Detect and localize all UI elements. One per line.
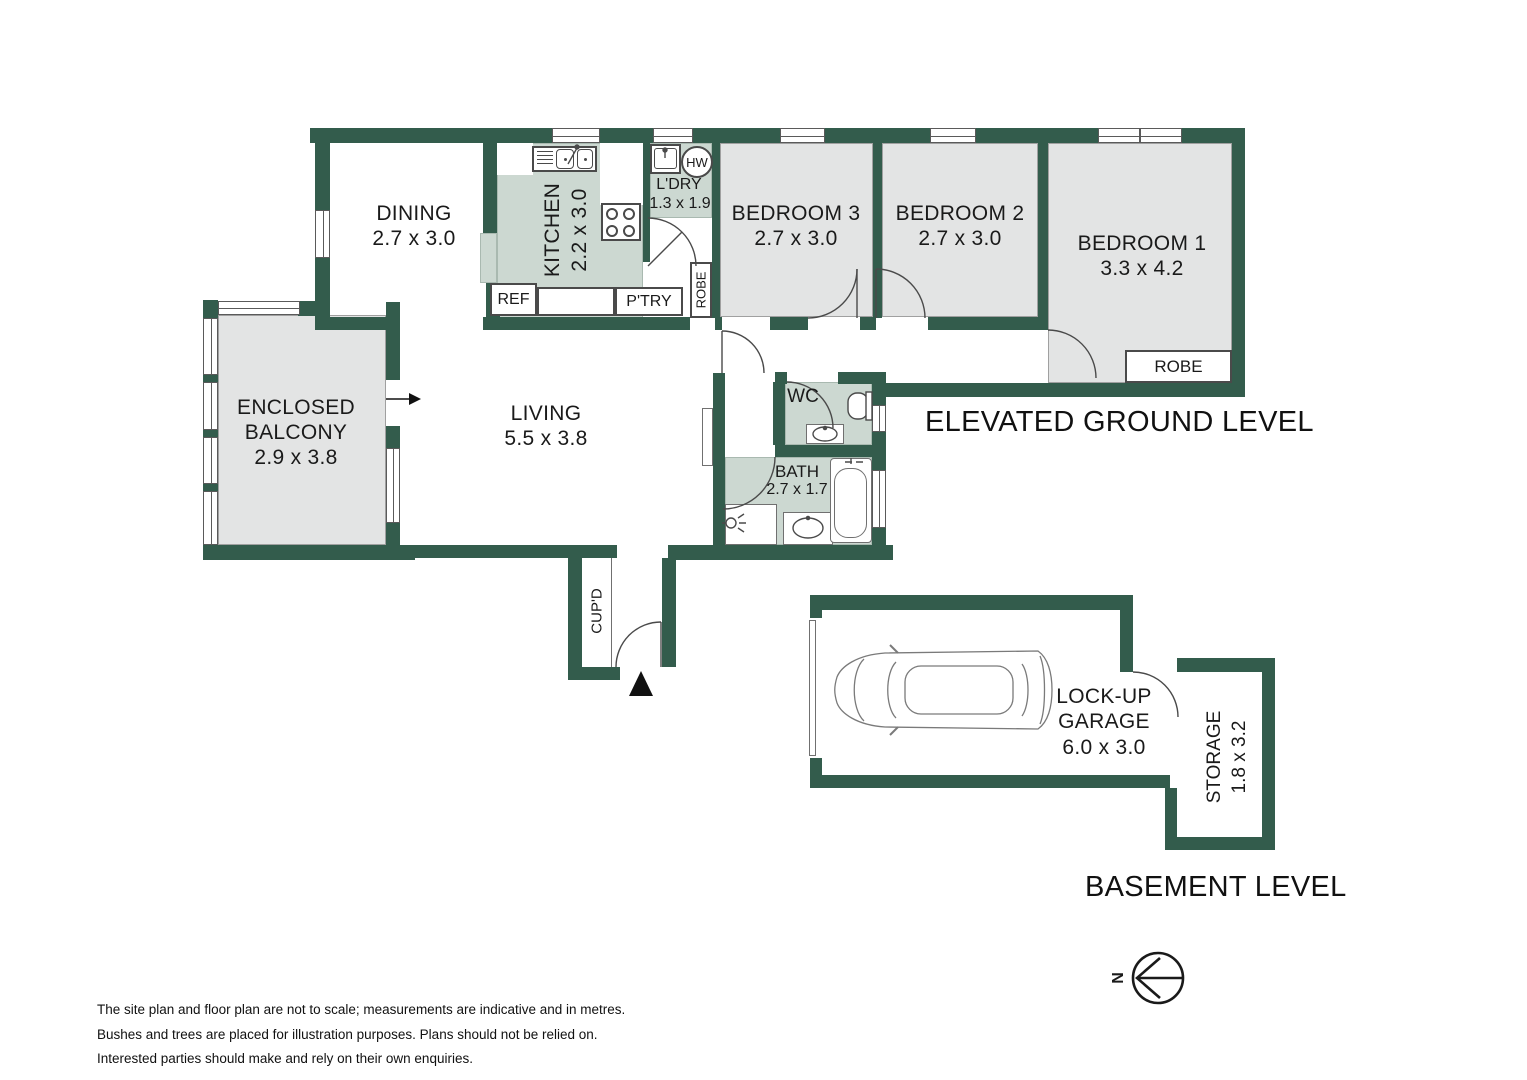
wall	[1120, 658, 1133, 672]
laundry-tub-bowl-icon	[654, 148, 677, 169]
bath-label: BATH	[775, 462, 819, 482]
wall	[203, 300, 218, 316]
storage-dims: 1.8 x 3.2	[1227, 711, 1252, 804]
cupboard-label: CUP'D	[589, 588, 606, 633]
window	[552, 128, 600, 143]
dining-label: DINING	[376, 202, 451, 226]
cupboard-door-line	[611, 558, 612, 667]
wall	[483, 317, 690, 330]
kitchen-label-group: KITCHEN 2.2 x 3.0	[539, 183, 593, 277]
laundry-dims: 1.3 x 1.9	[649, 195, 710, 213]
bedroom2-label: BEDROOM 2	[896, 202, 1025, 226]
bath-basin-icon	[783, 512, 833, 545]
kitchen-label: KITCHEN	[539, 183, 566, 277]
pantry-label: P'TRY	[626, 293, 671, 311]
window	[872, 405, 886, 432]
wall	[483, 143, 497, 233]
wall	[400, 545, 617, 558]
wall	[1165, 837, 1275, 850]
wall	[1120, 595, 1133, 658]
upper-level-title: ELEVATED GROUND LEVEL	[925, 406, 1314, 439]
hall-robe-label: ROBE	[694, 272, 709, 309]
wall	[1177, 658, 1275, 672]
disclaimer-line: The site plan and floor plan are not to …	[97, 1002, 625, 1017]
bedroom1-dims: 3.3 x 4.2	[1100, 257, 1183, 281]
wc-basin-icon	[806, 424, 844, 444]
window	[1098, 128, 1140, 143]
garage-dims: 6.0 x 3.0	[1062, 736, 1145, 760]
wall	[1038, 143, 1048, 330]
wall	[1262, 658, 1275, 850]
window	[203, 318, 218, 375]
wall	[1165, 788, 1177, 837]
sink-tap-dot	[584, 158, 587, 161]
wall	[810, 775, 1170, 788]
wc-label: WC	[787, 386, 819, 408]
bedroom1-robe-label: ROBE	[1154, 357, 1202, 377]
fridge-label: REF	[498, 291, 530, 309]
living-dims: 5.5 x 3.8	[504, 427, 587, 451]
kitchen-counter	[600, 143, 645, 205]
wall	[568, 558, 582, 667]
entry-arrow-icon	[629, 671, 653, 696]
disclaimer-line: Interested parties should make and rely …	[97, 1051, 473, 1066]
laundry-door-arc	[648, 218, 696, 266]
wall	[715, 317, 722, 330]
dining-dims: 2.7 x 3.0	[372, 227, 455, 251]
wall	[315, 258, 330, 330]
laundry-label: L'DRY	[656, 176, 701, 194]
balcony-label-line2: BALCONY	[245, 421, 347, 445]
balcony-dims: 2.9 x 3.8	[254, 446, 337, 470]
stove-burner-icon	[623, 208, 635, 220]
wall	[810, 595, 1133, 610]
wall	[662, 558, 676, 667]
bedroom1-robe-box: ROBE	[1125, 350, 1232, 383]
garage-label-line2: GARAGE	[1058, 710, 1150, 734]
floor-plan: HW REF P'TRY ROBE ROBE	[0, 0, 1527, 1080]
wall	[713, 373, 725, 545]
bathtub-inner-icon	[834, 468, 867, 538]
wall	[770, 317, 808, 330]
duct-box	[702, 408, 713, 466]
wall	[315, 143, 330, 210]
hall-door-arc	[722, 331, 764, 373]
bedroom3-dims: 2.7 x 3.0	[754, 227, 837, 251]
wall	[203, 545, 415, 560]
hot-water-icon: HW	[681, 146, 713, 178]
compass-north-label: N	[1110, 972, 1128, 984]
window	[203, 491, 218, 545]
window	[872, 470, 886, 528]
kitchen-counter	[497, 143, 533, 175]
bedroom3-label: BEDROOM 3	[732, 202, 861, 226]
garage-label-line1: LOCK-UP	[1056, 685, 1151, 709]
kitchen-dims: 2.2 x 3.0	[566, 183, 593, 277]
wall	[298, 301, 315, 316]
window	[203, 382, 218, 430]
storage-label: STORAGE	[1202, 711, 1227, 804]
window	[218, 301, 300, 315]
kitchen-floor	[480, 233, 497, 283]
laundry-door-leaf	[648, 232, 682, 266]
window	[386, 448, 400, 523]
car-icon	[835, 645, 1052, 735]
window	[315, 210, 330, 258]
wall	[712, 143, 720, 318]
garage-door	[809, 620, 816, 756]
sink-drainer-icon	[537, 151, 553, 167]
window	[930, 128, 976, 143]
wall	[860, 317, 876, 330]
bedroom1-label: BEDROOM 1	[1078, 232, 1207, 256]
window	[203, 437, 218, 484]
sink-tap-dot	[564, 158, 567, 161]
disclaimer-line: Bushes and trees are placed for illustra…	[97, 1027, 598, 1042]
window	[1140, 128, 1182, 143]
living-label: LIVING	[511, 402, 582, 426]
compass-icon	[1133, 953, 1183, 1003]
wall	[928, 317, 1038, 330]
balcony-opening	[386, 380, 400, 426]
fridge-box: REF	[490, 283, 537, 316]
stove-burner-icon	[606, 208, 618, 220]
balcony-label-line1: ENCLOSED	[237, 396, 355, 420]
wall	[1232, 128, 1245, 397]
window	[653, 128, 693, 143]
front-door-arc	[616, 622, 661, 667]
pantry-box: P'TRY	[615, 287, 683, 316]
stove-burner-icon	[606, 225, 618, 237]
bedroom2-dims: 2.7 x 3.0	[918, 227, 1001, 251]
hot-water-label: HW	[686, 155, 708, 170]
shower-icon	[725, 504, 777, 545]
stove-burner-icon	[623, 225, 635, 237]
lower-level-title: BASEMENT LEVEL	[1085, 871, 1347, 904]
wall	[668, 545, 893, 560]
bath-dims: 2.7 x 1.7	[766, 481, 827, 499]
wall	[886, 383, 1245, 397]
wall	[568, 667, 620, 680]
wall	[810, 610, 822, 618]
wall	[773, 382, 785, 445]
wall	[873, 143, 882, 318]
kitchen-bench-box	[537, 287, 615, 316]
storage-label-group: STORAGE 1.8 x 3.2	[1202, 711, 1252, 804]
wall	[775, 445, 885, 457]
window	[780, 128, 825, 143]
